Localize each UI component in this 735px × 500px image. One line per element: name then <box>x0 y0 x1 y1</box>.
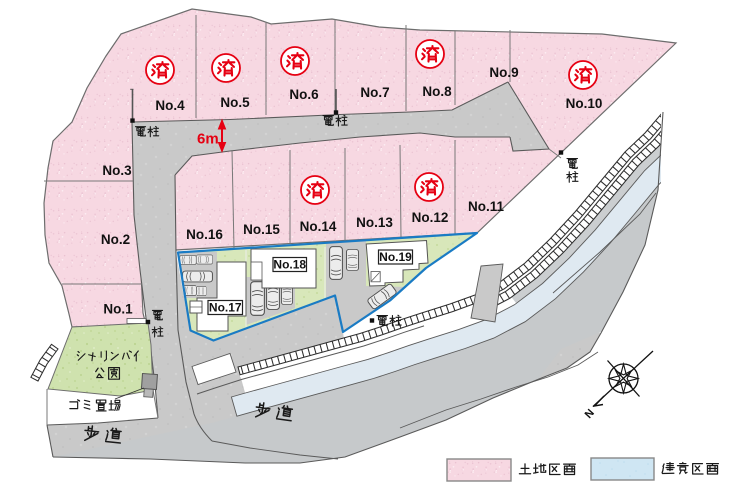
svg-text:No.4: No.4 <box>155 98 185 113</box>
svg-text:6m: 6m <box>197 131 219 148</box>
svg-text:No.18: No.18 <box>273 258 306 272</box>
svg-text:No.17: No.17 <box>209 301 242 315</box>
svg-text:No.15: No.15 <box>243 222 280 237</box>
svg-text:No.14: No.14 <box>300 219 337 234</box>
svg-text:No.8: No.8 <box>422 84 452 99</box>
svg-text:No.6: No.6 <box>289 87 319 102</box>
svg-text:No.9: No.9 <box>489 65 518 80</box>
svg-text:No.13: No.13 <box>356 215 393 230</box>
svg-text:No.12: No.12 <box>412 210 449 225</box>
svg-text:No.1: No.1 <box>103 302 133 317</box>
svg-text:No.7: No.7 <box>360 85 389 100</box>
svg-text:No.10: No.10 <box>566 96 603 111</box>
svg-text:No.3: No.3 <box>102 163 132 178</box>
svg-text:No.16: No.16 <box>186 227 223 242</box>
svg-text:No.11: No.11 <box>468 199 505 214</box>
svg-text:No.19: No.19 <box>379 250 412 264</box>
svg-text:No.2: No.2 <box>101 232 130 247</box>
svg-text:No.5: No.5 <box>220 95 250 110</box>
